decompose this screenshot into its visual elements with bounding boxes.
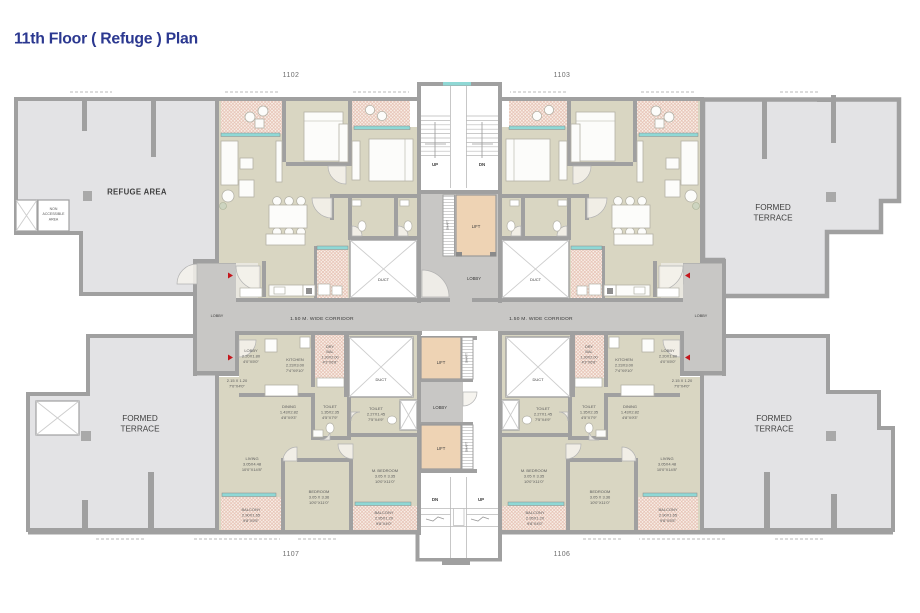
svg-text:BALCONY: BALCONY [374,510,393,515]
svg-text:1106: 1106 [554,551,571,558]
svg-text:1103: 1103 [554,72,571,79]
svg-text:3.05 X 3.35: 3.05 X 3.35 [375,474,396,479]
svg-text:10′0"X14′8": 10′0"X14′8" [242,467,263,472]
svg-text:TERRACE: TERRACE [753,214,793,223]
svg-text:ACCESSIBLE: ACCESSIBLE [43,212,66,216]
svg-text:9′8"X4′0": 9′8"X4′0" [527,521,543,526]
svg-text:9′8"X5′5": 9′8"X5′5" [660,518,676,523]
svg-text:BAL: BAL [585,350,592,354]
svg-text:3.05X4.48: 3.05X4.48 [658,462,677,467]
svg-text:LOBBY: LOBBY [433,405,447,410]
svg-text:DN: DN [432,497,438,502]
svg-text:M. BEDROOM: M. BEDROOM [521,468,547,473]
svg-text:1.43X2.82: 1.43X2.82 [280,410,299,415]
svg-text:SHAFT: SHAFT [446,220,450,230]
svg-text:TERRACE: TERRACE [120,425,160,434]
svg-text:2.95X1.20: 2.95X1.20 [375,516,394,521]
svg-text:DRY: DRY [585,345,593,349]
svg-text:2.20X1.80: 2.20X1.80 [659,354,678,359]
svg-text:DUCT: DUCT [530,277,542,282]
svg-text:2.15 X 1.20: 2.15 X 1.20 [227,378,248,383]
svg-text:2.23X3.00: 2.23X3.00 [615,363,634,368]
svg-text:UP: UP [478,497,484,502]
svg-text:2.95X1.20: 2.95X1.20 [526,516,545,521]
svg-text:BALCONY: BALCONY [658,507,677,512]
svg-text:7′5"X4′9": 7′5"X4′9" [535,417,551,422]
svg-text:1.50 M. WIDE CORRIDOR: 1.50 M. WIDE CORRIDOR [509,316,573,322]
svg-text:1107: 1107 [283,551,300,558]
svg-text:LIFT: LIFT [437,446,446,451]
svg-text:4′5"X7′9": 4′5"X7′9" [322,415,338,420]
svg-text:TOILET: TOILET [369,406,383,411]
svg-text:FORMED: FORMED [756,414,792,423]
svg-text:2.20X1.80: 2.20X1.80 [242,354,261,359]
svg-text:3.05 X 3.35: 3.05 X 3.35 [524,474,545,479]
svg-text:1.35X2.35: 1.35X2.35 [580,410,599,415]
svg-text:7′0"X4′0": 7′0"X4′0" [674,384,690,389]
svg-text:9′8"X5′5": 9′8"X5′5" [243,518,259,523]
svg-text:LIFT: LIFT [472,224,481,229]
svg-text:4′3"X6′8": 4′3"X6′8" [322,361,338,365]
svg-text:1.50 M. WIDE CORRIDOR: 1.50 M. WIDE CORRIDOR [290,316,354,322]
svg-text:2.15 X 1.20: 2.15 X 1.20 [672,378,693,383]
svg-text:10′0"X11′0": 10′0"X11′0" [309,500,330,505]
svg-text:2.27X1.45: 2.27X1.45 [367,412,386,417]
svg-text:7′5"X4′9": 7′5"X4′9" [368,417,384,422]
svg-text:3.05X4.48: 3.05X4.48 [243,462,262,467]
svg-text:DUCT: DUCT [378,277,390,282]
svg-text:1.43X2.82: 1.43X2.82 [621,410,640,415]
svg-text:UP: UP [432,162,438,167]
svg-text:DINING: DINING [623,404,637,409]
svg-text:M. BEDROOM: M. BEDROOM [372,468,398,473]
svg-text:7′0"X4′0": 7′0"X4′0" [229,384,245,389]
svg-text:2.27X1.45: 2.27X1.45 [534,412,553,417]
svg-text:1.35X2.35: 1.35X2.35 [321,410,340,415]
svg-text:DN: DN [479,162,485,167]
svg-text:TOILET: TOILET [582,404,596,409]
svg-text:10′0"X11′0": 10′0"X11′0" [375,479,396,484]
svg-text:3.05 X 3.36: 3.05 X 3.36 [590,495,611,500]
svg-text:FORMED: FORMED [122,414,158,423]
svg-text:KITCHEN: KITCHEN [286,357,304,362]
svg-text:BAL: BAL [326,350,333,354]
svg-text:DUCT: DUCT [375,377,387,382]
svg-text:4′8"X9′3": 4′8"X9′3" [281,415,297,420]
svg-text:TOILET: TOILET [536,406,550,411]
svg-text:AREA: AREA [49,217,59,221]
svg-text:DINING: DINING [282,404,296,409]
svg-text:LIVING: LIVING [245,456,258,461]
svg-text:BEDROOM: BEDROOM [590,489,611,494]
svg-text:LOBBY: LOBBY [244,348,258,353]
svg-text:1.30X2.00: 1.30X2.00 [321,355,338,359]
svg-text:7′4"X9′10": 7′4"X9′10" [286,368,305,373]
svg-text:LIVING: LIVING [660,456,673,461]
svg-text:LOBBY: LOBBY [695,314,708,318]
svg-text:2.90X1.65: 2.90X1.65 [242,513,261,518]
svg-text:KITCHEN: KITCHEN [615,357,633,362]
svg-text:4′8"X9′3": 4′8"X9′3" [622,415,638,420]
svg-text:10′0"X11′0": 10′0"X11′0" [590,500,611,505]
svg-text:7′4"X9′10": 7′4"X9′10" [615,368,634,373]
svg-text:BALCONY: BALCONY [241,507,260,512]
svg-text:10′0"X11′0": 10′0"X11′0" [524,479,545,484]
svg-text:SHAFT: SHAFT [465,353,469,363]
svg-text:FORMED: FORMED [755,203,791,212]
svg-text:4′5"X7′9": 4′5"X7′9" [581,415,597,420]
svg-text:4′0"X5′0": 4′0"X5′0" [660,359,676,364]
svg-text:REFUGE AREA: REFUGE AREA [107,188,167,197]
svg-text:TERRACE: TERRACE [754,425,794,434]
svg-text:LOBBY: LOBBY [211,314,224,318]
svg-text:LOBBY: LOBBY [467,276,481,281]
svg-text:LIFT: LIFT [437,360,446,365]
svg-text:BEDROOM: BEDROOM [309,489,330,494]
svg-text:9′8"X4′0": 9′8"X4′0" [376,521,392,526]
svg-text:10′0"X14′8": 10′0"X14′8" [657,467,678,472]
svg-text:2.23X3.00: 2.23X3.00 [286,363,305,368]
svg-text:BALCONY: BALCONY [525,510,544,515]
svg-text:4′0"X5′0": 4′0"X5′0" [243,359,259,364]
svg-text:3.05 X 3.36: 3.05 X 3.36 [309,495,330,500]
svg-text:SHAFT: SHAFT [465,442,469,452]
svg-text:DUCT: DUCT [532,377,544,382]
svg-text:TOILET: TOILET [323,404,337,409]
svg-text:4′3"X6′8": 4′3"X6′8" [581,361,597,365]
svg-text:2.90X1.65: 2.90X1.65 [659,513,678,518]
svg-text:LOBBY: LOBBY [661,348,675,353]
svg-text:11th Floor ( Refuge ) Plan: 11th Floor ( Refuge ) Plan [14,31,198,48]
svg-text:1.30X2.00: 1.30X2.00 [580,355,597,359]
svg-text:DRY: DRY [326,345,334,349]
svg-text:NON: NON [50,207,58,211]
svg-text:1102: 1102 [283,72,300,79]
